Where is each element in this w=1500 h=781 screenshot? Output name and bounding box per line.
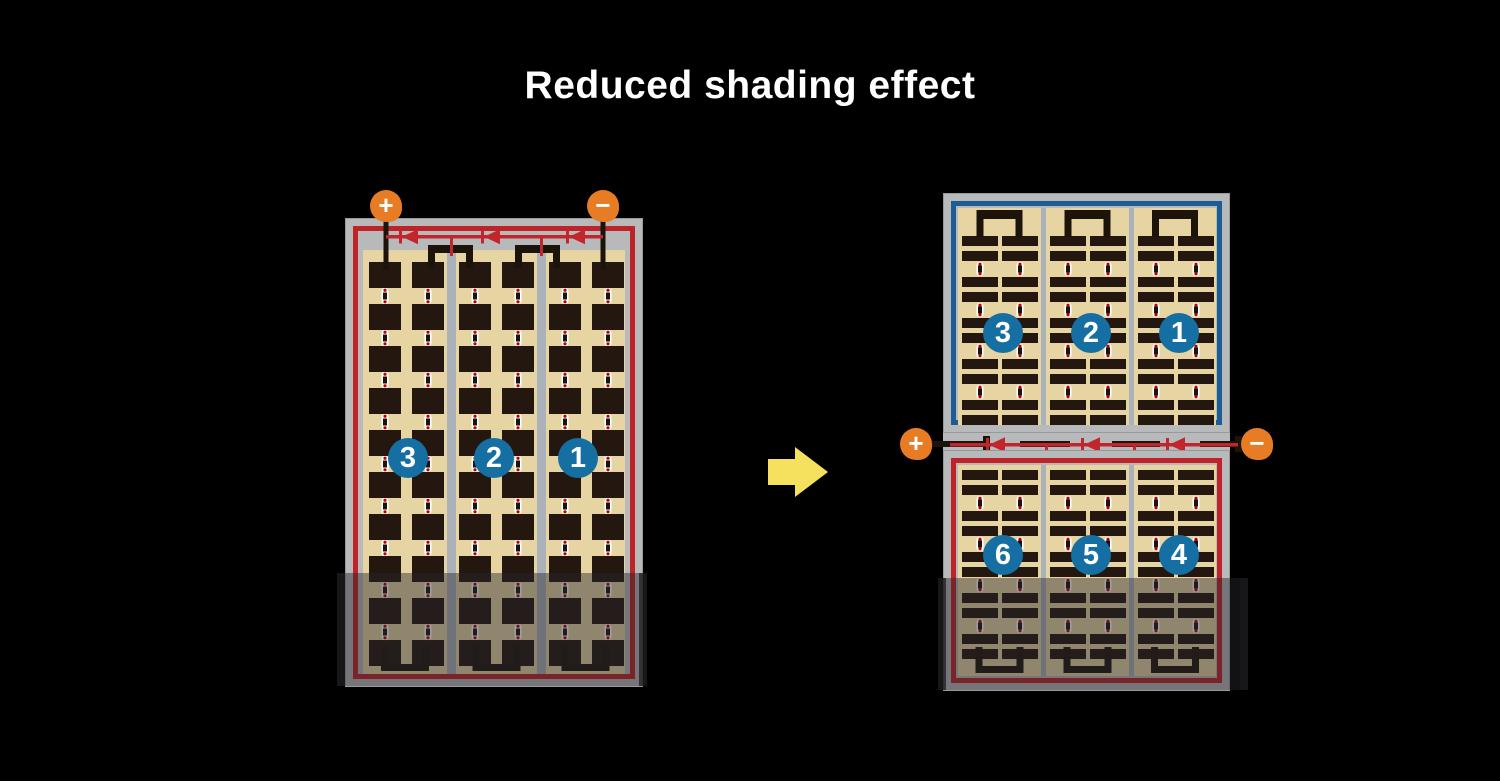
plus-terminal-icon: + bbox=[370, 190, 402, 222]
string-badge: 2 bbox=[1071, 313, 1111, 353]
string-badge: 1 bbox=[1159, 313, 1199, 353]
page-title: Reduced shading effect bbox=[0, 64, 1500, 108]
string-badge: 2 bbox=[474, 438, 514, 478]
string-badge: 5 bbox=[1071, 535, 1111, 575]
shade-overlay bbox=[938, 578, 1248, 690]
string-badge: 1 bbox=[558, 438, 598, 478]
string-badge: 6 bbox=[983, 535, 1023, 575]
string-badge: 3 bbox=[983, 313, 1023, 353]
minus-terminal-icon: − bbox=[1241, 428, 1273, 460]
string-badge: 3 bbox=[388, 438, 428, 478]
plus-terminal-icon: + bbox=[900, 428, 932, 460]
shade-overlay bbox=[337, 573, 647, 686]
diagram-canvas: Reduced shading effect + − + − 3 2 1 3 2… bbox=[0, 0, 1500, 781]
arrow-right-icon bbox=[768, 447, 828, 497]
minus-terminal-icon: − bbox=[587, 190, 619, 222]
string-badge: 4 bbox=[1159, 535, 1199, 575]
